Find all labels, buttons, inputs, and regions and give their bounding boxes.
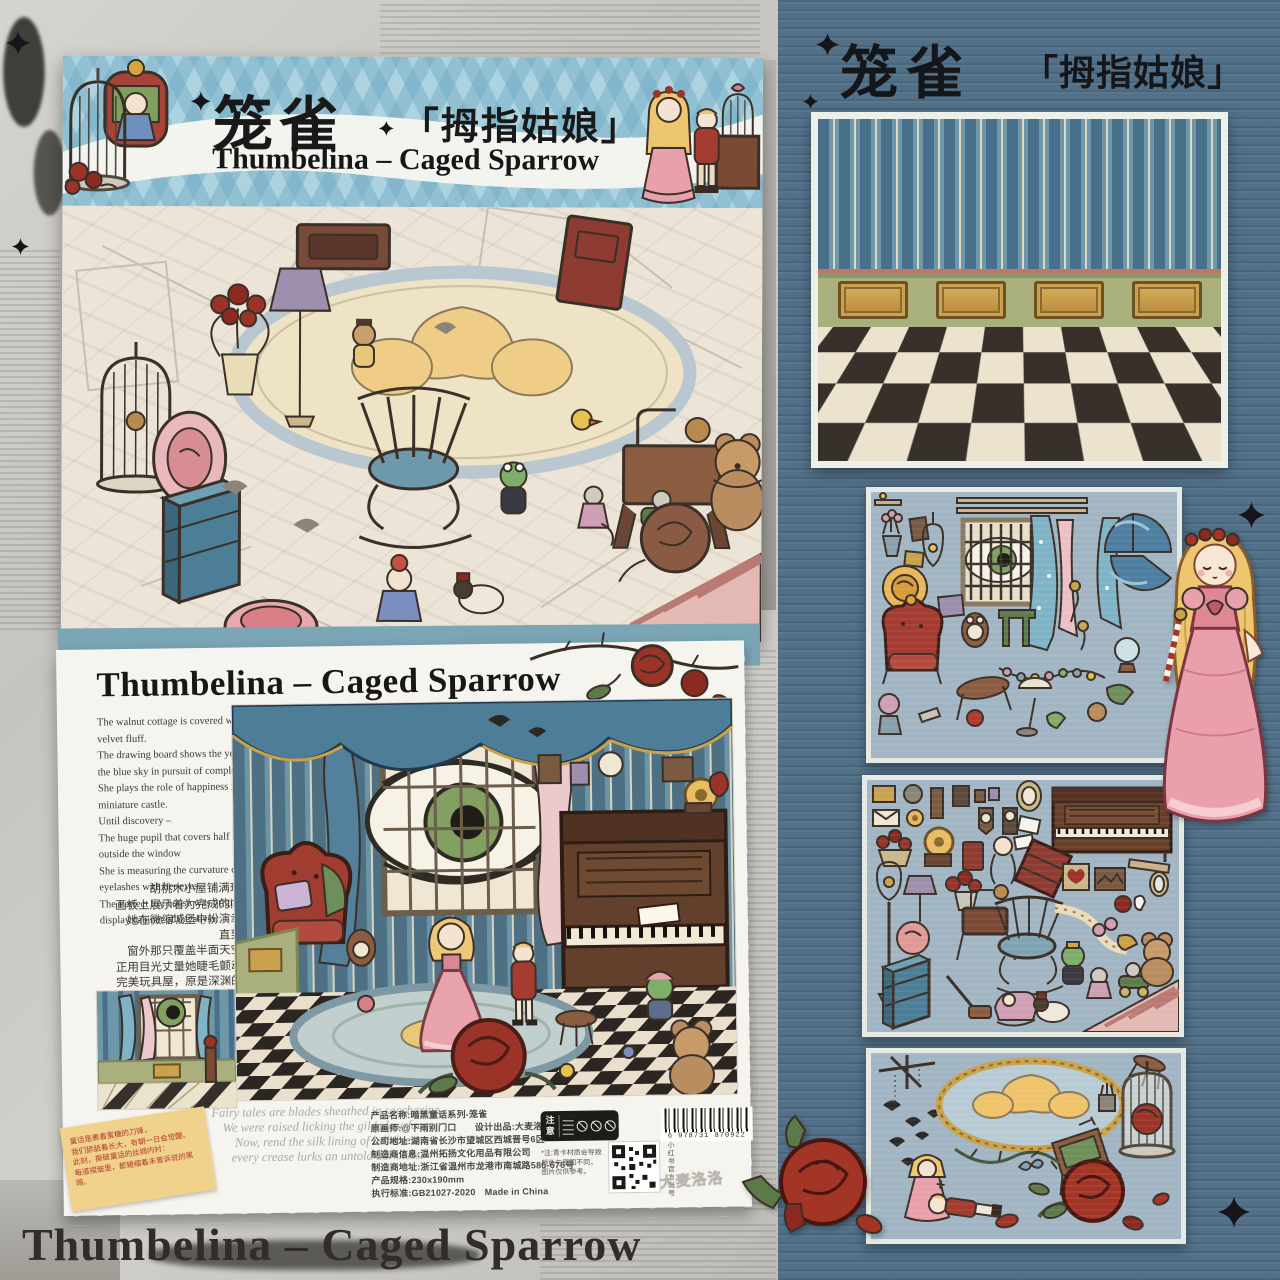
oval-portrait-sticker [1017, 781, 1041, 811]
princess-face [1194, 545, 1235, 586]
notice-badge: 注意 [540, 1110, 618, 1141]
flower-medallion-sticker [907, 810, 923, 826]
princess-illustration [643, 86, 695, 203]
gold-ornament [936, 281, 1006, 319]
box-title-english: Thumbelina – Caged Sparrow [171, 142, 641, 178]
prince-illustration [695, 109, 719, 193]
beads-garland-sticker [999, 668, 1105, 682]
armchair-illustration [105, 60, 167, 146]
sheet-title: Thumbelina – Caged Sparrow [96, 659, 561, 705]
clock-stickers [979, 808, 1017, 834]
princess-sticker-large [1150, 512, 1280, 858]
envelope-sticker [873, 810, 899, 826]
standing-lamp-sticker [1017, 678, 1051, 736]
sparkle-icon [6, 28, 30, 58]
wood-plank-sticker [1129, 859, 1170, 872]
wall-shelf-sticker [875, 493, 901, 505]
flower-basket-sticker [877, 830, 911, 866]
gold-ornament [838, 281, 908, 319]
sticker-sheet-piano-art [867, 780, 1179, 1032]
brand-logo: 大麦洛洛 [659, 1167, 725, 1193]
tassel-tiebacks-sticker [1070, 581, 1088, 650]
birdcage-rose-sticker [1120, 1061, 1174, 1157]
bottom-caption: Thumbelina – Caged Sparrow [22, 1218, 641, 1271]
sparkle-icon [379, 119, 394, 138]
sparkle-icon [1218, 1192, 1250, 1232]
sticker-sheet-window-art [871, 492, 1177, 758]
right-title-chinese: 笼雀 [840, 26, 972, 110]
clown-doll [377, 555, 421, 621]
tulip-vase-sticker [882, 510, 902, 556]
messy-room-scene [61, 206, 763, 642]
instruction-sheet: Thumbelina – Caged Sparrow The walnut co… [56, 640, 752, 1216]
box-header-right-illustration [634, 58, 763, 208]
carpet-sweeper-sticker [947, 976, 991, 1018]
sticker-sheet-piano [862, 775, 1184, 1037]
box-header-left-illustration [62, 56, 181, 206]
blue-shelf [163, 480, 239, 602]
curtain-rods-sticker [957, 498, 1087, 513]
poster-collage: 笼雀 「拇指姑娘」 Thumbelina – Caged Sparrow [0, 0, 1280, 1280]
red-armchair-sticker [883, 595, 942, 684]
sticker-sheet-rose-art [871, 1053, 1181, 1239]
music-box [297, 225, 389, 269]
striped-wallpaper [818, 119, 1221, 269]
blue-shelf-sticker [883, 955, 929, 1028]
no-entry-icon [577, 1120, 588, 1131]
room-thumbnail-illustration [97, 990, 237, 1110]
purple-lamp-sticker [904, 876, 936, 922]
red-armchair [262, 842, 351, 943]
sparkle-icon [191, 88, 211, 114]
rose-leaf [786, 1116, 805, 1148]
barred-window-eye-sticker [963, 520, 1037, 604]
checkerboard-floor [818, 327, 1221, 462]
product-box: 笼雀 「拇指姑娘」 Thumbelina – Caged Sparrow [61, 56, 763, 642]
teddy-bear [711, 434, 762, 530]
mouse-doll [578, 487, 613, 546]
recycle-icon [605, 1120, 616, 1131]
gramophone-sticker [925, 828, 953, 866]
qr-disclaimer: *注:青卡材质会导致颜色与原图不同，图片仅供参考。 [541, 1148, 603, 1177]
red-book-sticker [963, 842, 983, 870]
box-header: 笼雀 「拇指姑娘」 Thumbelina – Caged Sparrow [62, 56, 763, 208]
sticker-sheet-window [866, 487, 1182, 763]
gold-ornament [1034, 281, 1104, 319]
cradle-sticker [995, 992, 1037, 1026]
rose-illustration [737, 1112, 887, 1250]
notice-badge-label: 注意 [544, 1115, 560, 1137]
yellow-note: 童话是裹着蜜糖的刀锋， 我们舔舐着长大，有朝一日会觉醒。 此刻，撕破童话的丝绸内… [60, 1106, 217, 1211]
marionette-bars-sticker [879, 1055, 935, 1101]
teddy-bear-sticker [1141, 933, 1173, 986]
gold-ornament [1132, 281, 1202, 319]
notice-fine-print [563, 1117, 574, 1135]
newsprint-text-strip [0, 250, 60, 630]
frog-prince-toy [500, 462, 526, 513]
console-table-sticker [999, 610, 1035, 646]
landscape-frame-sticker [1095, 868, 1125, 890]
right-title-chinese-sub: 「拇指姑娘」 [1022, 44, 1244, 96]
mouse-dolls-sticker [1087, 963, 1149, 998]
red-book [556, 216, 632, 310]
rose-petal [785, 1204, 805, 1232]
monkey-toy [353, 319, 375, 367]
sparkle-icon [12, 236, 29, 257]
rose-bloom-sticker [1028, 1161, 1123, 1221]
ribbon-doll-sticker [991, 837, 1015, 884]
toy-dog-sticker [1034, 992, 1069, 1022]
hand-mirror-sticker [1150, 872, 1168, 896]
room-backdrop-panel [811, 112, 1228, 468]
sticker-sheet-rose [866, 1048, 1186, 1244]
upright-piano [561, 811, 727, 989]
owl-clock [347, 930, 375, 966]
box-cover-illustration [61, 206, 763, 642]
toy-dog [454, 573, 503, 613]
right-column-title: 笼雀 「拇指姑娘」 [804, 22, 1274, 114]
pink-cushion-sticker [897, 922, 929, 954]
age-warning-icon [591, 1120, 602, 1131]
owl-clock-sticker [962, 613, 988, 647]
newsprint-text-strip [380, 0, 760, 54]
qr-code [609, 1142, 660, 1193]
ghost-rose-sticker [1115, 896, 1145, 912]
rose-leaf [743, 1176, 783, 1208]
frog-king-sticker [1062, 942, 1084, 984]
frog-toy [646, 971, 675, 1019]
blue-bow-sticker [1018, 1159, 1043, 1171]
wainscot-panel [818, 269, 1221, 327]
dresser-cage-illustration [717, 84, 759, 188]
rose-petal [854, 1211, 884, 1236]
heart-frame-sticker [1063, 864, 1089, 890]
main-room-scene [232, 699, 737, 1101]
oval-table-sticker [956, 674, 1011, 720]
vine-scroll-sticker [1055, 908, 1127, 950]
